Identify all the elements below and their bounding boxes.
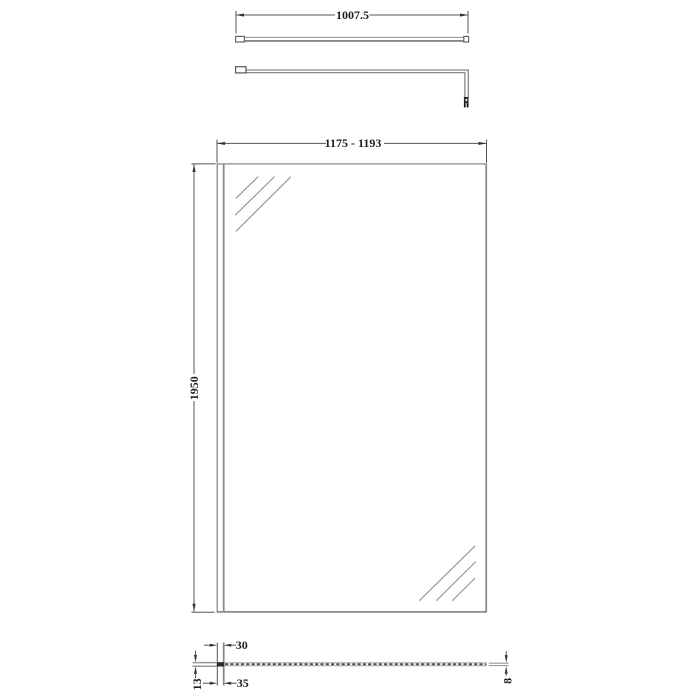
svg-text:8: 8 (500, 678, 514, 684)
svg-text:1175 - 1193: 1175 - 1193 (325, 136, 382, 150)
svg-text:1950: 1950 (187, 376, 201, 400)
svg-text:13: 13 (190, 678, 204, 690)
svg-text:1007.5: 1007.5 (336, 8, 369, 22)
svg-text:35: 35 (237, 676, 249, 690)
svg-text:30: 30 (236, 638, 248, 652)
